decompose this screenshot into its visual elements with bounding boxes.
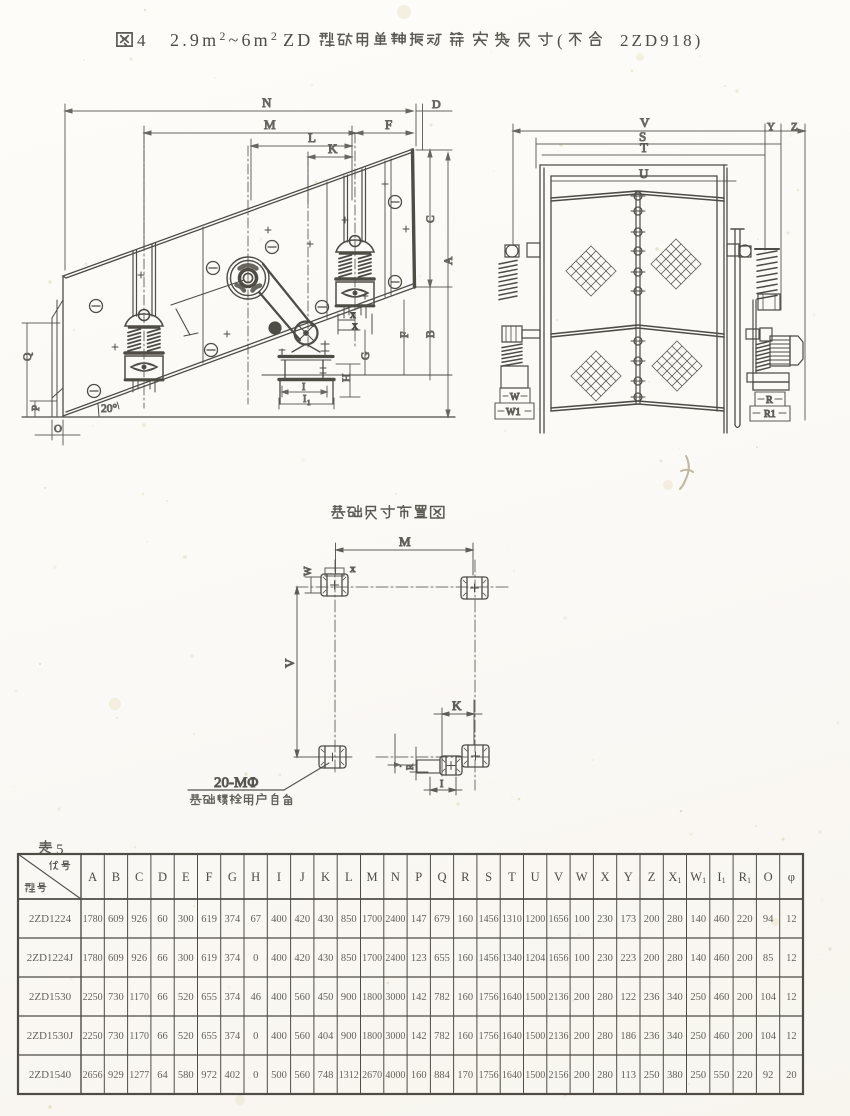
svg-text:402: 402 bbox=[225, 1070, 241, 1081]
svg-text:1500: 1500 bbox=[525, 1031, 545, 1042]
svg-text:926: 926 bbox=[131, 953, 147, 964]
svg-text:Y: Y bbox=[624, 870, 633, 884]
svg-text:374: 374 bbox=[225, 914, 242, 925]
svg-text:2136: 2136 bbox=[549, 992, 569, 1003]
svg-text:104: 104 bbox=[760, 992, 777, 1003]
svg-text:730: 730 bbox=[108, 992, 124, 1003]
svg-text:1204: 1204 bbox=[525, 953, 545, 964]
svg-text:250: 250 bbox=[644, 1070, 660, 1081]
svg-text:100: 100 bbox=[574, 953, 590, 964]
svg-text:200: 200 bbox=[644, 914, 660, 925]
svg-text:0: 0 bbox=[253, 1070, 258, 1081]
svg-text:460: 460 bbox=[714, 953, 730, 964]
svg-text:2ZD1530: 2ZD1530 bbox=[29, 991, 72, 1003]
svg-text:1640: 1640 bbox=[502, 992, 522, 1003]
svg-text:U: U bbox=[531, 870, 540, 884]
svg-text:12: 12 bbox=[786, 914, 797, 925]
svg-text:G: G bbox=[228, 870, 237, 884]
svg-text:K: K bbox=[321, 870, 330, 884]
svg-text:2400: 2400 bbox=[385, 914, 405, 925]
svg-text:850: 850 bbox=[341, 914, 357, 925]
svg-text:1780: 1780 bbox=[83, 953, 103, 964]
svg-text:220: 220 bbox=[737, 914, 753, 925]
svg-text:250: 250 bbox=[690, 1031, 706, 1042]
svg-text:850: 850 bbox=[341, 953, 357, 964]
svg-text:A: A bbox=[88, 870, 97, 884]
svg-text:560: 560 bbox=[294, 1070, 310, 1081]
svg-text:926: 926 bbox=[131, 914, 147, 925]
svg-text:O: O bbox=[764, 870, 773, 884]
svg-text:2400: 2400 bbox=[385, 953, 405, 964]
svg-text:580: 580 bbox=[178, 1070, 194, 1081]
svg-text:142: 142 bbox=[411, 992, 427, 1003]
svg-text:3000: 3000 bbox=[385, 1031, 405, 1042]
svg-text:D: D bbox=[158, 870, 167, 884]
svg-text:I: I bbox=[302, 382, 305, 393]
svg-text:400: 400 bbox=[271, 992, 287, 1003]
svg-text:C: C bbox=[135, 870, 143, 884]
svg-text:1800: 1800 bbox=[362, 1031, 382, 1042]
svg-text:0: 0 bbox=[253, 953, 258, 964]
svg-text:2250: 2250 bbox=[83, 1031, 103, 1042]
svg-text:12: 12 bbox=[786, 953, 797, 964]
svg-text:2670: 2670 bbox=[362, 1070, 382, 1081]
svg-text:460: 460 bbox=[714, 1031, 730, 1042]
svg-text:12: 12 bbox=[786, 992, 797, 1003]
svg-text:1700: 1700 bbox=[362, 953, 382, 964]
svg-text:1500: 1500 bbox=[525, 1070, 545, 1081]
svg-text:U: U bbox=[639, 166, 649, 181]
svg-text:G: G bbox=[360, 352, 372, 360]
svg-text:123: 123 bbox=[411, 953, 427, 964]
svg-text:C: C bbox=[425, 215, 437, 223]
svg-text:W: W bbox=[576, 870, 588, 884]
svg-text:1312: 1312 bbox=[339, 1070, 359, 1081]
svg-text:374: 374 bbox=[225, 1031, 242, 1042]
svg-text:K: K bbox=[328, 141, 338, 156]
svg-text:160: 160 bbox=[457, 953, 473, 964]
svg-text:230: 230 bbox=[597, 953, 613, 964]
svg-text:Z: Z bbox=[648, 870, 656, 884]
svg-text:I: I bbox=[440, 779, 443, 790]
svg-text:1170: 1170 bbox=[129, 1031, 149, 1042]
svg-text:2.9m2~6m2ZD: 2.9m2~6m2ZD bbox=[170, 29, 313, 50]
svg-text:1277: 1277 bbox=[129, 1070, 149, 1081]
svg-text:4000: 4000 bbox=[385, 1070, 405, 1081]
svg-text:Y: Y bbox=[767, 121, 775, 133]
svg-text:160: 160 bbox=[457, 1031, 473, 1042]
svg-text:12: 12 bbox=[786, 1031, 797, 1042]
svg-text:L: L bbox=[345, 870, 353, 884]
svg-text:K: K bbox=[452, 698, 462, 713]
svg-text:160: 160 bbox=[411, 1070, 427, 1081]
svg-text:782: 782 bbox=[434, 1031, 450, 1042]
svg-text:220: 220 bbox=[737, 1070, 753, 1081]
svg-text:679: 679 bbox=[434, 914, 450, 925]
svg-text:560: 560 bbox=[294, 1031, 310, 1042]
svg-text:D: D bbox=[432, 97, 441, 111]
svg-text:N: N bbox=[391, 870, 400, 884]
svg-text:500: 500 bbox=[271, 1070, 287, 1081]
svg-text:200: 200 bbox=[644, 953, 660, 964]
svg-text:200: 200 bbox=[737, 953, 753, 964]
svg-text:66: 66 bbox=[157, 992, 168, 1003]
svg-text:B: B bbox=[112, 870, 120, 884]
svg-text:300: 300 bbox=[178, 914, 194, 925]
svg-text:929: 929 bbox=[108, 1070, 124, 1081]
svg-text:B: B bbox=[425, 330, 437, 338]
svg-text:Z: Z bbox=[791, 121, 798, 133]
svg-text:(: ( bbox=[557, 31, 563, 50]
svg-text:I: I bbox=[303, 394, 306, 405]
svg-text:R: R bbox=[766, 395, 773, 406]
svg-text:420: 420 bbox=[294, 914, 310, 925]
svg-text:2ZD1530J: 2ZD1530J bbox=[27, 1030, 74, 1042]
svg-text:H: H bbox=[251, 870, 260, 884]
svg-text:66: 66 bbox=[157, 953, 168, 964]
svg-text:450: 450 bbox=[318, 992, 334, 1003]
svg-text:230: 230 bbox=[597, 914, 613, 925]
svg-text:340: 340 bbox=[667, 1031, 683, 1042]
svg-text:5: 5 bbox=[56, 842, 64, 858]
svg-text:Q: Q bbox=[437, 870, 446, 884]
svg-text:X: X bbox=[352, 322, 358, 331]
svg-text:1640: 1640 bbox=[502, 1070, 522, 1081]
svg-text:1700: 1700 bbox=[362, 914, 382, 925]
svg-text:186: 186 bbox=[620, 1031, 636, 1042]
svg-text:1340: 1340 bbox=[502, 953, 522, 964]
svg-text:1: 1 bbox=[307, 399, 311, 407]
svg-text:374: 374 bbox=[225, 992, 242, 1003]
svg-text:236: 236 bbox=[644, 1031, 660, 1042]
svg-text:147: 147 bbox=[411, 914, 427, 925]
svg-text:420: 420 bbox=[294, 953, 310, 964]
svg-text:1456: 1456 bbox=[479, 953, 499, 964]
svg-text:200: 200 bbox=[737, 992, 753, 1003]
svg-text:2136: 2136 bbox=[549, 1031, 569, 1042]
svg-text:655: 655 bbox=[434, 953, 450, 964]
svg-text:300: 300 bbox=[178, 953, 194, 964]
svg-text:2656: 2656 bbox=[83, 1070, 103, 1081]
svg-text:N: N bbox=[262, 95, 272, 110]
svg-text:60: 60 bbox=[157, 914, 168, 925]
svg-text:200: 200 bbox=[574, 1070, 590, 1081]
svg-text:460: 460 bbox=[714, 992, 730, 1003]
svg-text:609: 609 bbox=[108, 914, 124, 925]
svg-text:94: 94 bbox=[763, 914, 774, 925]
svg-text:236: 236 bbox=[644, 992, 660, 1003]
svg-text:O: O bbox=[54, 423, 62, 435]
svg-text:W1: W1 bbox=[506, 407, 520, 418]
svg-text:A: A bbox=[443, 256, 455, 265]
svg-text:280: 280 bbox=[597, 992, 613, 1003]
svg-text:P: P bbox=[30, 405, 42, 411]
svg-text:884: 884 bbox=[434, 1070, 451, 1081]
svg-text:223: 223 bbox=[620, 953, 636, 964]
svg-text:W: W bbox=[303, 566, 314, 576]
svg-text:140: 140 bbox=[690, 953, 706, 964]
svg-text:104: 104 bbox=[760, 1031, 777, 1042]
svg-text:340: 340 bbox=[667, 992, 683, 1003]
svg-text:2ZD1224J: 2ZD1224J bbox=[27, 952, 74, 964]
svg-text:113: 113 bbox=[621, 1070, 636, 1081]
svg-text:V: V bbox=[640, 115, 650, 130]
svg-text:200: 200 bbox=[574, 992, 590, 1003]
svg-text:460: 460 bbox=[714, 914, 730, 925]
svg-text:200: 200 bbox=[574, 1031, 590, 1042]
svg-text:67: 67 bbox=[250, 914, 261, 925]
svg-text:y: y bbox=[391, 762, 401, 767]
svg-text:3000: 3000 bbox=[385, 992, 405, 1003]
svg-text:380: 380 bbox=[667, 1070, 683, 1081]
svg-text:1170: 1170 bbox=[129, 992, 149, 1003]
svg-text:1200: 1200 bbox=[525, 914, 545, 925]
svg-text:M: M bbox=[367, 870, 378, 884]
svg-text:T: T bbox=[640, 140, 648, 155]
svg-text:400: 400 bbox=[271, 1031, 287, 1042]
svg-text:R: R bbox=[461, 870, 470, 884]
svg-text:I: I bbox=[277, 870, 281, 884]
svg-text:280: 280 bbox=[597, 1070, 613, 1081]
svg-text:1656: 1656 bbox=[549, 914, 569, 925]
svg-text:L: L bbox=[308, 130, 316, 145]
svg-text:972: 972 bbox=[201, 1070, 217, 1081]
svg-text:I1: I1 bbox=[717, 870, 725, 885]
svg-text:X1: X1 bbox=[668, 870, 681, 885]
svg-text:4: 4 bbox=[137, 31, 146, 50]
svg-text:160: 160 bbox=[457, 914, 473, 925]
svg-text:730: 730 bbox=[108, 1031, 124, 1042]
svg-text:2ZD1540: 2ZD1540 bbox=[29, 1069, 72, 1081]
svg-text:2ZD1224: 2ZD1224 bbox=[29, 913, 72, 925]
svg-text:1656: 1656 bbox=[549, 953, 569, 964]
svg-text:Q: Q bbox=[22, 352, 34, 361]
svg-text:520: 520 bbox=[178, 1031, 194, 1042]
svg-text:R1: R1 bbox=[764, 409, 776, 420]
svg-text:J: J bbox=[300, 870, 305, 884]
svg-text:V: V bbox=[554, 870, 563, 884]
svg-text:x: x bbox=[350, 563, 356, 575]
svg-text:1456: 1456 bbox=[479, 914, 499, 925]
svg-text:X: X bbox=[600, 870, 609, 884]
svg-text:20-MΦ: 20-MΦ bbox=[214, 775, 258, 791]
svg-text:V: V bbox=[282, 658, 297, 668]
svg-text:M: M bbox=[264, 117, 276, 132]
svg-text:100: 100 bbox=[574, 914, 590, 925]
svg-text:S: S bbox=[485, 870, 492, 884]
svg-text:400: 400 bbox=[271, 914, 287, 925]
svg-text:619: 619 bbox=[201, 953, 217, 964]
svg-text:250: 250 bbox=[690, 992, 706, 1003]
svg-text:748: 748 bbox=[318, 1070, 334, 1081]
svg-text:X: X bbox=[350, 311, 356, 320]
svg-text:F: F bbox=[385, 117, 392, 132]
svg-text:655: 655 bbox=[201, 992, 217, 1003]
svg-text:560: 560 bbox=[294, 992, 310, 1003]
svg-text:160: 160 bbox=[457, 992, 473, 1003]
svg-text:655: 655 bbox=[201, 1031, 217, 1042]
svg-text:R1: R1 bbox=[739, 870, 751, 885]
svg-text:85: 85 bbox=[763, 953, 774, 964]
svg-text:T: T bbox=[508, 870, 516, 884]
svg-text:122: 122 bbox=[620, 992, 636, 1003]
svg-text:2156: 2156 bbox=[549, 1070, 569, 1081]
svg-text:1500: 1500 bbox=[525, 992, 545, 1003]
svg-text:1310: 1310 bbox=[502, 914, 522, 925]
svg-text:64: 64 bbox=[157, 1070, 168, 1081]
svg-text:F: F bbox=[399, 332, 411, 338]
svg-text:280: 280 bbox=[597, 1031, 613, 1042]
svg-text:1756: 1756 bbox=[479, 1031, 499, 1042]
svg-text:404: 404 bbox=[318, 1031, 335, 1042]
svg-text:280: 280 bbox=[667, 914, 683, 925]
svg-text:430: 430 bbox=[318, 953, 334, 964]
svg-text:66: 66 bbox=[157, 1031, 168, 1042]
svg-text:M: M bbox=[399, 534, 411, 549]
svg-text:2ZD918): 2ZD918) bbox=[620, 31, 703, 50]
svg-text:142: 142 bbox=[411, 1031, 427, 1042]
svg-text:900: 900 bbox=[341, 1031, 357, 1042]
svg-text:374: 374 bbox=[225, 953, 242, 964]
svg-text:170: 170 bbox=[457, 1070, 473, 1081]
svg-text:W1: W1 bbox=[690, 870, 706, 885]
svg-text:20°: 20° bbox=[101, 403, 118, 415]
svg-text:609: 609 bbox=[108, 953, 124, 964]
svg-text:P: P bbox=[415, 870, 422, 884]
svg-text:900: 900 bbox=[341, 992, 357, 1003]
svg-text:20: 20 bbox=[786, 1070, 797, 1081]
svg-text:140: 140 bbox=[690, 914, 706, 925]
svg-text:430: 430 bbox=[318, 914, 334, 925]
svg-text:0: 0 bbox=[253, 1031, 258, 1042]
svg-text:E: E bbox=[182, 870, 190, 884]
svg-text:46: 46 bbox=[250, 992, 261, 1003]
svg-text:619: 619 bbox=[201, 914, 217, 925]
svg-text:280: 280 bbox=[667, 953, 683, 964]
svg-text:1800: 1800 bbox=[362, 992, 382, 1003]
svg-text:92: 92 bbox=[763, 1070, 774, 1081]
svg-text:250: 250 bbox=[690, 1070, 706, 1081]
svg-text:R: R bbox=[405, 764, 415, 770]
svg-text:173: 173 bbox=[620, 914, 636, 925]
svg-text:1640: 1640 bbox=[502, 1031, 522, 1042]
svg-text:φ: φ bbox=[788, 870, 795, 884]
svg-text:520: 520 bbox=[178, 992, 194, 1003]
svg-text:1780: 1780 bbox=[83, 914, 103, 925]
svg-text:400: 400 bbox=[271, 953, 287, 964]
svg-text:F: F bbox=[206, 870, 213, 884]
svg-text:W: W bbox=[510, 392, 520, 403]
svg-text:1756: 1756 bbox=[479, 992, 499, 1003]
svg-text:782: 782 bbox=[434, 992, 450, 1003]
svg-text:550: 550 bbox=[714, 1070, 730, 1081]
svg-text:1756: 1756 bbox=[479, 1070, 499, 1081]
svg-text:200: 200 bbox=[737, 1031, 753, 1042]
svg-text:2250: 2250 bbox=[83, 992, 103, 1003]
